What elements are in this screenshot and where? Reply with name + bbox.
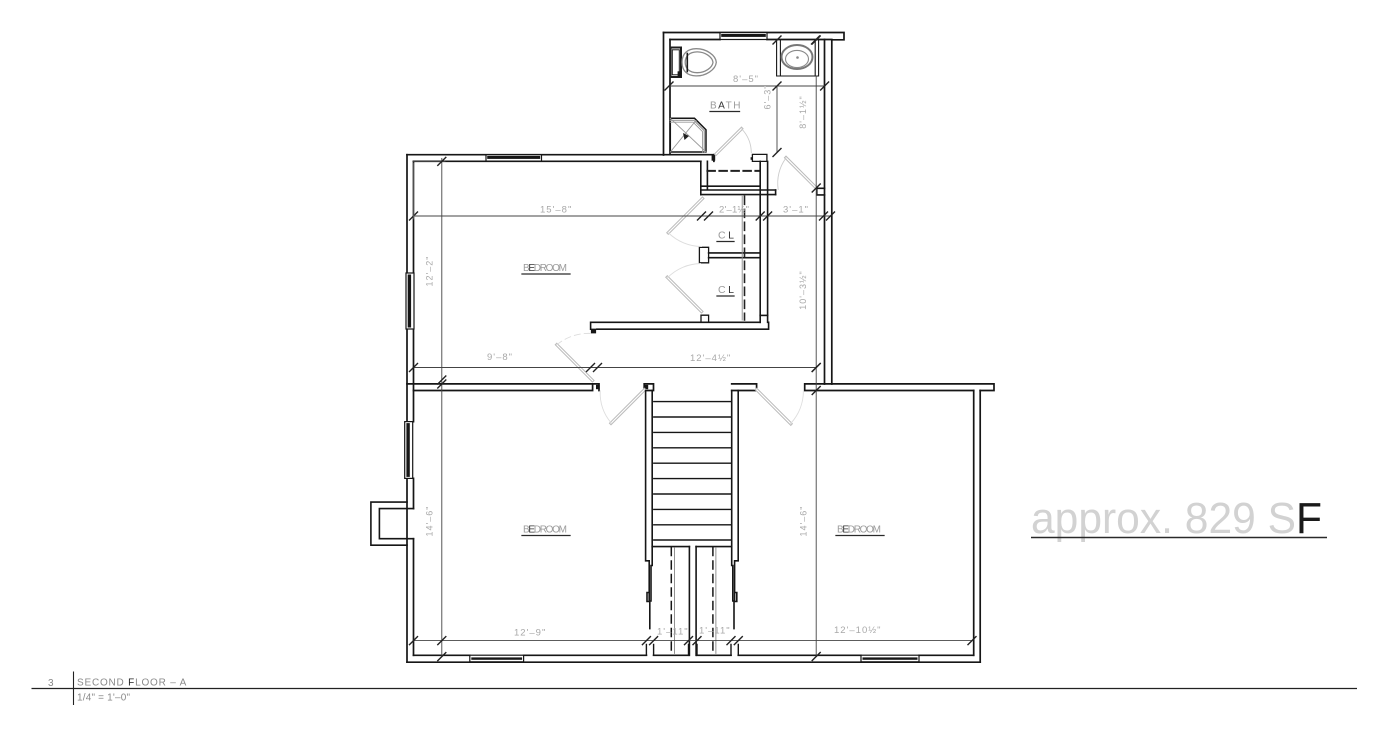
svg-text:15'–8": 15'–8" — [540, 205, 572, 216]
svg-text:1'–11": 1'–11" — [657, 627, 689, 638]
svg-text:12'–2": 12'–2" — [425, 256, 435, 287]
svg-text:2'–1½": 2'–1½" — [719, 205, 749, 216]
svg-text:8'–5": 8'–5" — [733, 74, 759, 85]
svg-text:3'–1": 3'–1" — [783, 205, 809, 216]
svg-text:14'–6": 14'–6" — [799, 506, 809, 537]
svg-text:14'–6": 14'–6" — [425, 506, 435, 537]
svg-text:CL: CL — [718, 284, 734, 296]
svg-text:10'–3½": 10'–3½" — [798, 270, 808, 309]
svg-text:9'–8": 9'–8" — [487, 352, 513, 363]
svg-text:SECOND FLOOR – A: SECOND FLOOR – A — [77, 678, 187, 689]
svg-text:BATH: BATH — [710, 101, 742, 112]
svg-text:BEDROOM: BEDROOM — [523, 263, 567, 274]
svg-text:6'–3": 6'–3" — [763, 85, 773, 110]
svg-text:12'–10½": 12'–10½" — [834, 625, 882, 636]
svg-text:12'–4½": 12'–4½" — [690, 353, 731, 364]
svg-text:CL: CL — [718, 230, 734, 242]
svg-text:1/4" = 1'–0": 1/4" = 1'–0" — [77, 693, 130, 704]
svg-text:BEDROOM: BEDROOM — [523, 525, 567, 536]
svg-text:BEDROOM: BEDROOM — [837, 525, 881, 536]
svg-text:12'–9": 12'–9" — [514, 628, 546, 639]
svg-text:approx. 829 SF: approx. 829 SF — [1031, 494, 1322, 543]
svg-text:1'–11": 1'–11" — [699, 626, 731, 637]
svg-text:3: 3 — [48, 678, 54, 689]
svg-text:8'–1½": 8'–1½" — [798, 95, 808, 128]
